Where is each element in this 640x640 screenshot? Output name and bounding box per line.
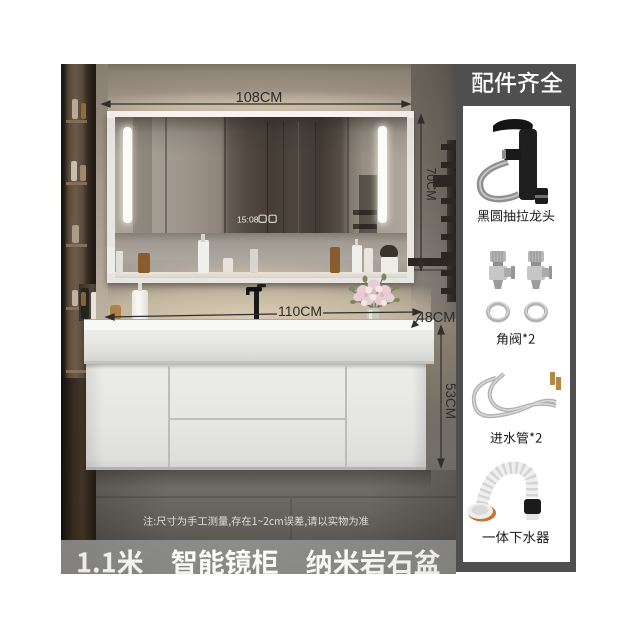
svg-text:48CM: 48CM xyxy=(417,310,456,326)
svg-text:110CM: 110CM xyxy=(278,303,322,319)
svg-text:53CM: 53CM xyxy=(443,383,456,419)
svg-text:70CM: 70CM xyxy=(424,167,438,200)
svg-text:108CM: 108CM xyxy=(236,90,283,106)
